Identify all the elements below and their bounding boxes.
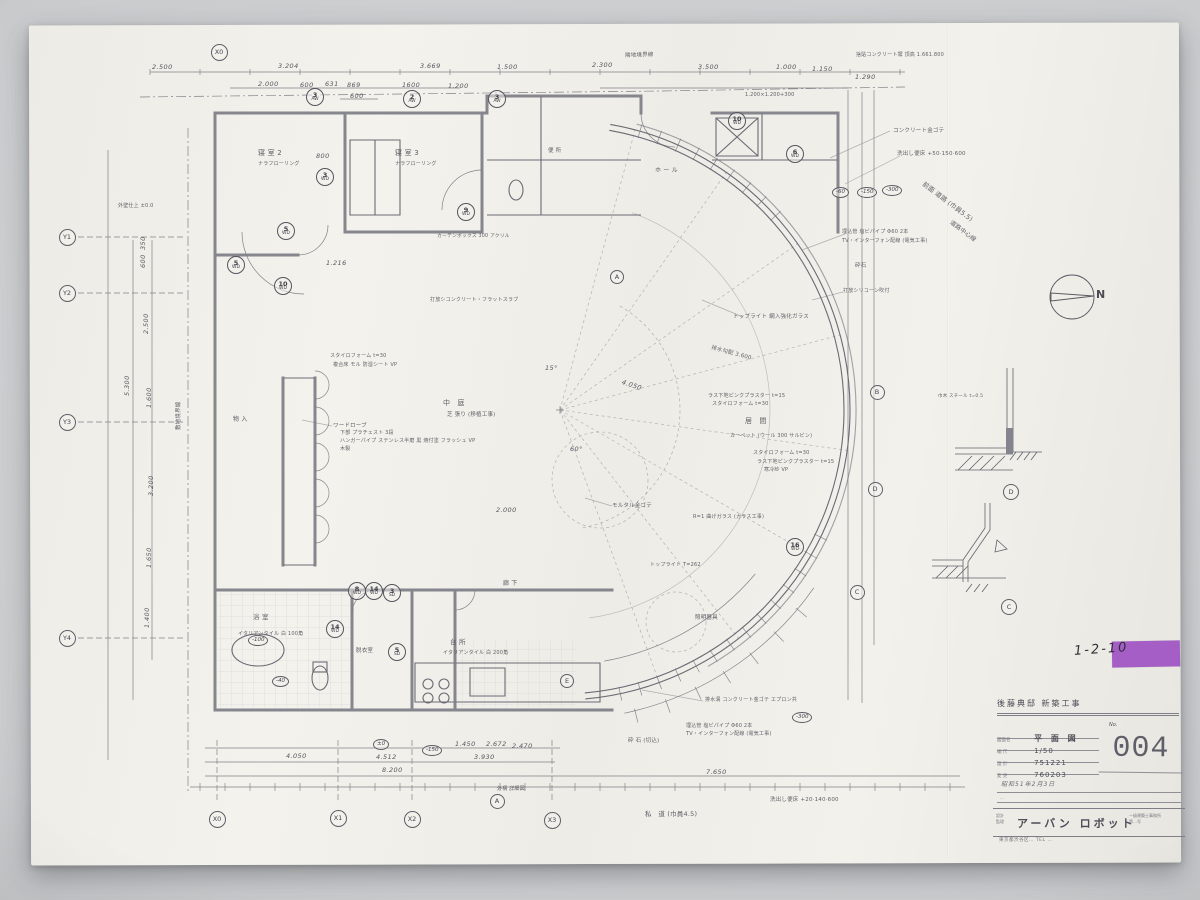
dimension-text: 8.200 (382, 766, 403, 774)
fitting-tag: 9WD (457, 203, 475, 221)
grid-bubble: E (560, 674, 574, 688)
annotation-text: スタイロフォーム t=30 (330, 354, 387, 360)
annotation-text: 外壁仕上 ±0.0 (118, 204, 154, 210)
annotation-text: 敷地境界線 (176, 401, 182, 430)
dimension-text: 2.470 (512, 742, 533, 750)
fitting-tag: 16WD (786, 538, 804, 556)
annotation-text: ラス下地ピンクプラスター t=15 (708, 394, 785, 400)
dimension-text: 600 (139, 254, 147, 268)
fitting-tag: 3WD (316, 168, 334, 186)
dimension-text: 1.000 (776, 63, 797, 71)
annotation-text: 浴 室 (253, 614, 269, 621)
annotation-text: 捨貼コンクリート塀 頂高 1.661.800 (856, 53, 944, 59)
level-mark: -300 (792, 712, 812, 723)
annotation-text: TV・インターフォン配線 (電気工事) (842, 239, 927, 245)
dimension-text: 869 (347, 81, 361, 89)
annotation-text: 前面 道路 (巾員5.5) (921, 181, 974, 224)
dimension-text: 7.650 (706, 768, 727, 776)
dimension-text: 3.500 (698, 63, 719, 71)
annotation-text: ハンガーパイプ ステンレス半磨 黒 焼付塗 フラッシュ VP (340, 439, 475, 445)
annotation-text: ワードローブ (333, 423, 367, 429)
annotation-text: 埋込管 塩ビパイプ Φ60 2本 (842, 230, 908, 236)
annotation-text: 道路中心線 (948, 220, 977, 244)
annotation-text: 木製 (340, 447, 350, 453)
annotation-text: 下部 プラチェスト 3段 (340, 431, 394, 437)
annotation-text: 物 入 (233, 417, 248, 424)
level-mark: -40 (272, 676, 289, 687)
annotation-text: 脱衣室 (356, 648, 373, 654)
dimension-text: 2.300 (592, 61, 613, 69)
annotation-text: 私 道 (巾員4.5) (645, 811, 697, 818)
fitting-tag: 5SD (388, 643, 406, 661)
annotation-text: 寝 室 3 (395, 150, 419, 158)
fitting-tag: 3SD (383, 584, 401, 602)
grid-bubble: D (1003, 484, 1019, 500)
grid-bubble: X3 (544, 812, 561, 829)
level-mark: ±0 (373, 739, 389, 750)
dimension-text: 2.672 (486, 740, 507, 748)
annotation-text: トップライト T=262 (650, 563, 701, 569)
fitting-tag: 14WD (365, 582, 383, 600)
annotation-text: トップライト 網入強化ガラス (733, 314, 809, 320)
annotation-text: 排水溝 コンクリート金ゴテ エプロン共 (705, 698, 797, 704)
title-block: 後藤典邸 新築工事 図面名 平 面 図 縮 尺 1/50 設 計 751221 … (993, 696, 1187, 848)
fitting-tag: 10WD (728, 112, 746, 130)
fitting-tag: 8WD (348, 582, 366, 600)
grid-bubble: D (868, 482, 883, 497)
annotation-text: イタリアンタイル 白 200角 (443, 651, 508, 657)
level-mark: -150 (422, 745, 442, 756)
dimension-text: 4.512 (376, 753, 397, 761)
grid-bubble: A (610, 270, 624, 284)
dimension-text: 3.204 (278, 62, 299, 70)
dimension-text: 5.300 (123, 375, 131, 396)
level-mark: -60 (832, 187, 849, 198)
dimension-text: 15° (545, 364, 558, 372)
grid-bubble: Y1 (59, 229, 76, 246)
annotation-text: 照明器具 (695, 615, 718, 621)
fitting-tag: 2AW (403, 90, 421, 108)
grid-bubble: A (490, 794, 505, 809)
grid-bubble: C (850, 585, 865, 600)
dimension-text: 1.150 (812, 65, 833, 73)
annotation-text: 埋込管 塩ビパイプ Φ60 2本 (686, 724, 752, 730)
firm-license-note: 一級建築士事務所第…号 (1129, 813, 1161, 825)
annotation-text: 寒冷紗 VP (764, 468, 788, 474)
annotation-text: 寝 室 2 (258, 150, 282, 158)
fitting-tag: 14WD (326, 620, 344, 638)
revision-date: 760203 (1034, 771, 1067, 779)
dimension-text: 2.000 (496, 506, 517, 514)
grid-bubble: Y3 (59, 414, 76, 431)
annotation-text: 洗出し便床 +50·150·600 (897, 151, 966, 157)
annotation-text: ナラフローリング (395, 162, 437, 168)
fitting-tag: 10WD (274, 277, 292, 295)
grid-bubble: Y4 (59, 630, 76, 647)
annotation-text: スタイロフォーム t=30 (712, 402, 769, 408)
annotation-text: 砕石 (855, 263, 866, 269)
grid-bubble: X0 (211, 44, 228, 61)
dimension-text: 4.050 (621, 378, 643, 392)
memo-row: … (997, 792, 1181, 803)
firm-address: 東京都渋谷区… TEL … (999, 837, 1052, 843)
annotation-text: 複合床 モル 防湿シート VP (333, 363, 397, 369)
annotation-text: モルタル金ゴテ (612, 503, 652, 509)
annotation-text: ナラフローリング (258, 162, 300, 168)
annotation-text: 便 所 (548, 148, 561, 154)
fitting-tag: 5WD (227, 256, 245, 274)
annotation-text: 巾木 スチール t=0.5 (938, 395, 983, 400)
dimension-text: 3.930 (474, 753, 495, 761)
dimension-text: 60° (570, 445, 583, 453)
level-mark: -150 (857, 187, 877, 198)
grid-bubble: C (1001, 599, 1017, 615)
fitting-tag: 3AW (306, 88, 324, 106)
annotation-text: 1.200×1.200+300 (745, 93, 795, 99)
dimension-text: 1.200 (448, 82, 469, 90)
annotation-text: 打放シコンクリート・フラットスラブ (430, 298, 518, 304)
dimension-text: 1.450 (455, 740, 476, 748)
annotation-text: スタイロフォーム t=30 (753, 451, 810, 457)
grid-bubble: X0 (209, 811, 226, 828)
level-mark: -100 (248, 635, 268, 646)
titleblock-row-revision-date: 変 更 760203 (997, 762, 1099, 775)
dimension-text: 2.500 (142, 313, 150, 334)
dimension-text: 1.216 (326, 259, 347, 267)
fitting-tag: 6WD (786, 145, 804, 163)
dimension-text: 1.650 (145, 547, 153, 568)
annotation-text: 打放シリコーン吹付 (843, 289, 890, 295)
dimension-text: 1.290 (855, 73, 876, 81)
annotation-text: 砕 石 (切込) (628, 738, 659, 744)
dimension-text: 631 (325, 80, 339, 88)
date-stamp: 昭和51年2月3日 (1001, 779, 1055, 788)
firm-row: 設計 監理 アーバン ロボット 一級建築士事務所第…号 (993, 808, 1185, 837)
annotation-text: 洗出し便床 +20·140·600 (770, 797, 839, 803)
dimension-text: 2.000 (258, 80, 279, 88)
dimension-text: 1.400 (143, 607, 151, 628)
grid-bubble: Y2 (59, 285, 76, 302)
dimension-text: 4.050 (286, 752, 307, 760)
annotation-text: R=1 曲げガラス (ガラス工事) (693, 515, 764, 521)
dimension-text: 600 (350, 92, 364, 100)
annotation-text: ホ ー ル (655, 168, 678, 175)
dimension-text: 1.500 (497, 63, 518, 71)
annotation-text: 中 庭 (443, 400, 465, 408)
dimension-text: 1.600 (145, 387, 153, 408)
grid-bubble: B (870, 385, 885, 400)
annotation-text: 居 間 (745, 418, 767, 426)
annotation-text: カーテンボックス 300 アクリル (437, 234, 510, 239)
annotation-text: 廊 下 (503, 581, 518, 588)
north-label: N (1096, 288, 1105, 301)
project-title: 後藤典邸 新築工事 (997, 698, 1179, 716)
annotation-text: カーペット (ウール 300 サルビン) (730, 434, 812, 440)
annotation-text: コンクリート金ゴテ (893, 128, 944, 134)
level-mark: -300 (882, 185, 902, 196)
annotation-text: 台 所 (450, 639, 466, 646)
sheet-number: 004 (1099, 726, 1183, 774)
annotation-text: TV・インターフォン配線 (電気工事) (686, 732, 771, 738)
firm-role-label: 設計 監理 (996, 813, 1004, 824)
annotation-text: イタリアンタイル 白 100角 (238, 632, 303, 638)
firm-name: アーバン ロボット (1017, 815, 1136, 831)
dimension-text: 800 (316, 152, 330, 160)
dimension-text: 3.669 (420, 62, 441, 70)
photographed-drawing-sheet: { "photo": { "sticker_code": "1-2-10", "… (0, 0, 1200, 900)
fitting-tag: 3AW (488, 90, 506, 108)
annotation-text: 排水勾配 3.600 (710, 345, 752, 362)
dimension-text: 350 (139, 236, 147, 250)
dimension-text: 1600 (402, 81, 420, 89)
grid-bubble: X2 (404, 811, 421, 828)
dimension-text: 3.200 (147, 475, 155, 496)
annotation-text: 芝 張り (移植工事) (447, 412, 496, 418)
annotation-text: 外構 詳細図 (497, 787, 525, 793)
annotation-text: ラス下地ピンクプラスター t=15 (757, 460, 834, 466)
dimension-text: 2.500 (152, 63, 173, 71)
annotation-text: 隣地境界線 (625, 52, 654, 59)
grid-bubble: X1 (330, 810, 347, 827)
fitting-tag: 5WD (277, 222, 295, 240)
